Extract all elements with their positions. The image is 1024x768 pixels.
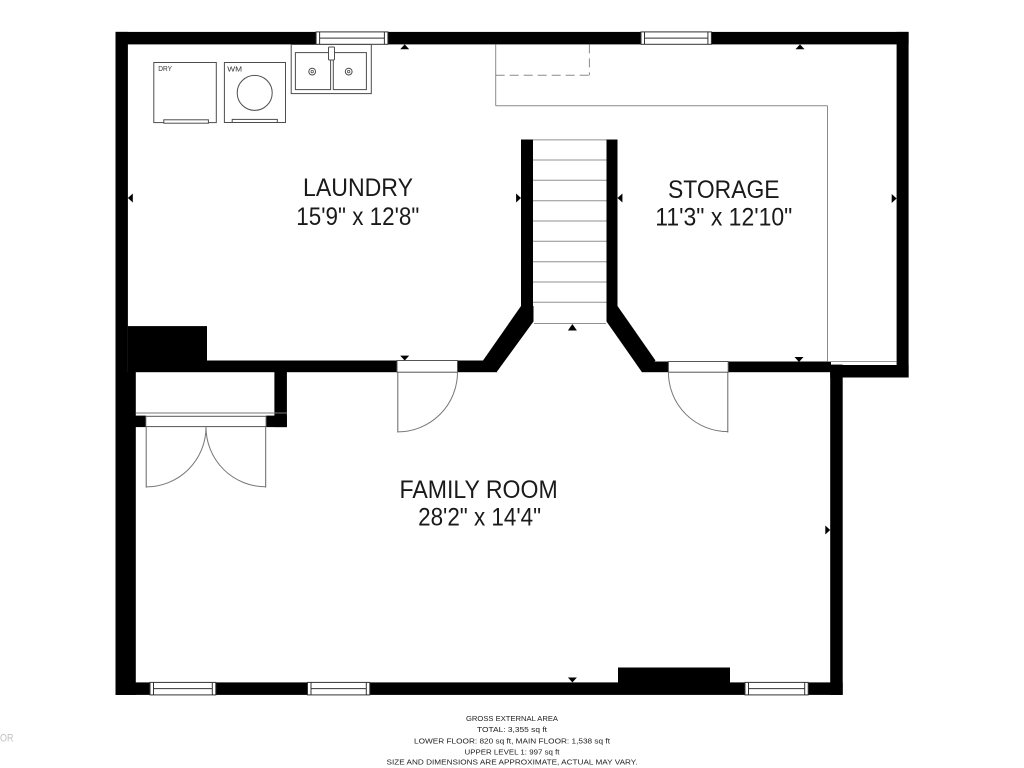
svg-text:GROSS EXTERNAL AREA: GROSS EXTERNAL AREA bbox=[466, 714, 558, 723]
svg-text:SIZE AND DIMENSIONS ARE APPROX: SIZE AND DIMENSIONS ARE APPROXIMATE, ACT… bbox=[387, 758, 638, 767]
svg-text:LOWER FLOOR: 820 sq ft, MAIN F: LOWER FLOOR: 820 sq ft, MAIN FLOOR: 1,53… bbox=[414, 736, 611, 745]
svg-text:LAUNDRY: LAUNDRY bbox=[303, 174, 413, 202]
svg-text:15'9" x 12'8": 15'9" x 12'8" bbox=[296, 203, 419, 231]
svg-text:28'2" x 14'4": 28'2" x 14'4" bbox=[418, 503, 541, 531]
svg-text:STORAGE: STORAGE bbox=[668, 176, 780, 204]
svg-text:WM: WM bbox=[227, 65, 242, 74]
svg-text:OR: OR bbox=[0, 732, 14, 744]
svg-text:UPPER LEVEL 1: 997 sq ft: UPPER LEVEL 1: 997 sq ft bbox=[465, 747, 561, 756]
svg-text:FAMILY ROOM: FAMILY ROOM bbox=[400, 476, 558, 504]
svg-text:TOTAL: 3,355 sq ft: TOTAL: 3,355 sq ft bbox=[477, 725, 548, 734]
svg-text:11'3" x 12'10": 11'3" x 12'10" bbox=[655, 203, 792, 231]
svg-text:DRY: DRY bbox=[158, 64, 172, 73]
